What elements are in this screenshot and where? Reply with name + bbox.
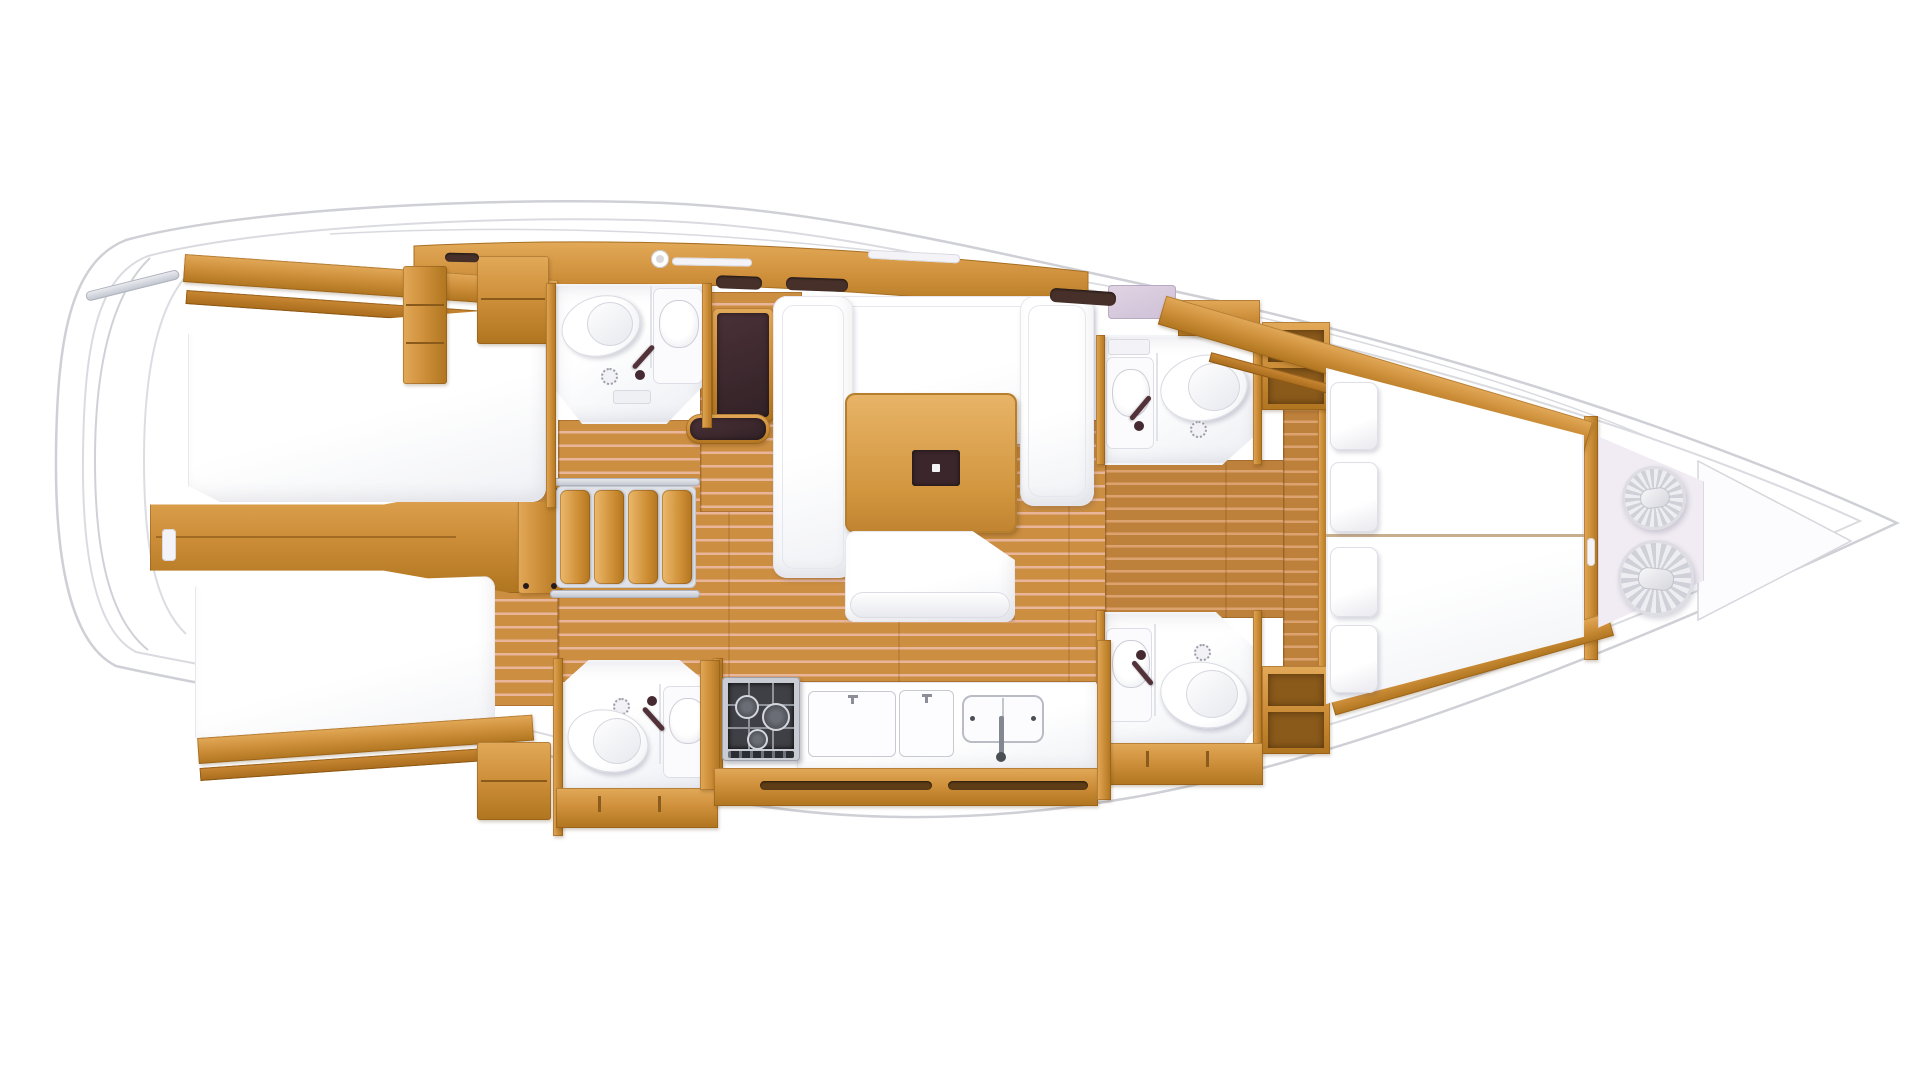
step bbox=[594, 490, 624, 584]
toilet-lid bbox=[1188, 363, 1240, 411]
corridor-center-seam bbox=[156, 536, 456, 538]
engine-bolt bbox=[523, 583, 529, 589]
wall-tick bbox=[658, 796, 661, 812]
faucet-knob bbox=[647, 696, 657, 706]
table-inlay-center bbox=[932, 464, 940, 472]
berth-center-seam bbox=[1326, 534, 1584, 537]
lid-latch bbox=[925, 694, 928, 703]
rope-coil-core bbox=[1639, 486, 1671, 510]
settee-contour bbox=[782, 305, 844, 569]
pillow bbox=[1330, 625, 1378, 693]
wall-tick bbox=[1206, 751, 1209, 767]
deck-locker-slot bbox=[786, 277, 848, 292]
yacht-floor-plan bbox=[0, 0, 1920, 1080]
deck-vent-core bbox=[656, 255, 664, 263]
bulkhead bbox=[1096, 335, 1105, 465]
head-aft-bottom-wall bbox=[556, 788, 718, 828]
salon-sofa bbox=[845, 531, 1015, 622]
salon-settee-left bbox=[773, 296, 853, 578]
salon-table bbox=[845, 393, 1017, 533]
fwd-cabin-bulkhead bbox=[1318, 368, 1327, 704]
lid-latch bbox=[851, 695, 854, 704]
washbasin-bowl bbox=[1112, 369, 1150, 417]
shelf-line bbox=[481, 298, 545, 300]
rope-coil bbox=[1618, 540, 1694, 616]
pillow bbox=[1330, 462, 1378, 532]
toilet-lid bbox=[1186, 670, 1238, 718]
head-aft-bottom bbox=[553, 660, 715, 794]
shelf-line bbox=[481, 780, 547, 782]
head-fwd-bottom bbox=[1102, 612, 1260, 748]
partition-line bbox=[650, 286, 652, 368]
stove bbox=[722, 677, 800, 761]
locker-handle bbox=[948, 781, 1088, 790]
partition-line bbox=[1154, 624, 1156, 716]
partition-line bbox=[1156, 353, 1158, 441]
deck-hatch-slot bbox=[672, 257, 752, 266]
companionway-rail-top bbox=[550, 478, 700, 486]
sink-faucet-base bbox=[996, 752, 1006, 762]
nav-bench-frame bbox=[686, 414, 770, 444]
rope-coil bbox=[1622, 466, 1686, 530]
cubby bbox=[1268, 674, 1324, 706]
step bbox=[662, 490, 692, 584]
knob-strip bbox=[728, 751, 794, 758]
head-shelf bbox=[1108, 339, 1150, 355]
faucet-knob bbox=[635, 370, 645, 380]
pillow bbox=[1330, 382, 1378, 450]
washbasin-bowl bbox=[659, 300, 699, 348]
deck-locker-slot bbox=[716, 275, 762, 290]
burner bbox=[762, 703, 790, 731]
shower-drain bbox=[601, 368, 618, 385]
shelf-unit-bottom bbox=[1262, 666, 1330, 754]
shower-drain bbox=[1190, 421, 1207, 438]
faucet bbox=[642, 706, 666, 732]
bow-bulkhead-handle bbox=[1587, 538, 1595, 566]
pillow bbox=[1330, 547, 1378, 617]
bulkhead bbox=[1253, 610, 1262, 755]
aft-top-wardrobe bbox=[403, 266, 447, 384]
bulkhead bbox=[702, 283, 712, 428]
sofa-backrest bbox=[850, 592, 1010, 618]
sink-dot bbox=[970, 716, 975, 721]
sink-dot bbox=[1031, 716, 1036, 721]
bulkhead bbox=[546, 283, 556, 508]
salon-settee-right bbox=[1020, 296, 1094, 506]
table-inlay bbox=[912, 450, 960, 486]
toilet-lid bbox=[587, 302, 633, 346]
galley-lockers bbox=[714, 768, 1098, 806]
sink-faucet bbox=[999, 716, 1004, 756]
head-fwd-top bbox=[1102, 335, 1260, 465]
shower-step bbox=[613, 390, 651, 404]
counter-lid bbox=[899, 690, 954, 757]
burner bbox=[747, 729, 768, 750]
faucet-knob bbox=[1134, 421, 1144, 431]
floor-fwd-corridor bbox=[1105, 460, 1295, 618]
shelf-line bbox=[406, 342, 444, 344]
nav-chart-seat-frame bbox=[712, 308, 774, 422]
burner bbox=[735, 695, 759, 719]
step bbox=[628, 490, 658, 584]
wall-tick bbox=[598, 796, 601, 812]
companionway-steps bbox=[556, 486, 696, 588]
aft-bottom-nightstand bbox=[477, 742, 551, 820]
aft-top-locker bbox=[477, 256, 549, 344]
deck-vent bbox=[651, 250, 669, 268]
head-fwd-bottom-wall bbox=[1105, 743, 1263, 785]
shower-drain bbox=[1194, 644, 1211, 661]
counter-lid bbox=[808, 691, 896, 757]
corridor-door bbox=[162, 529, 176, 561]
shelf-line bbox=[406, 304, 444, 306]
wall-tick bbox=[1146, 751, 1149, 767]
toilet-lid bbox=[593, 718, 641, 764]
locker-handle bbox=[760, 781, 932, 790]
step bbox=[560, 490, 590, 584]
cubby bbox=[1268, 712, 1324, 748]
rope-coil-core bbox=[1637, 566, 1675, 592]
deck-locker-slot bbox=[445, 253, 479, 263]
head-aft-top bbox=[551, 284, 707, 424]
nav-chart-seat bbox=[717, 313, 769, 417]
settee-contour bbox=[1028, 305, 1086, 497]
galley-right-panel bbox=[1097, 640, 1111, 800]
faucet-knob bbox=[1136, 650, 1146, 660]
companionway-rail-bottom bbox=[550, 590, 700, 598]
